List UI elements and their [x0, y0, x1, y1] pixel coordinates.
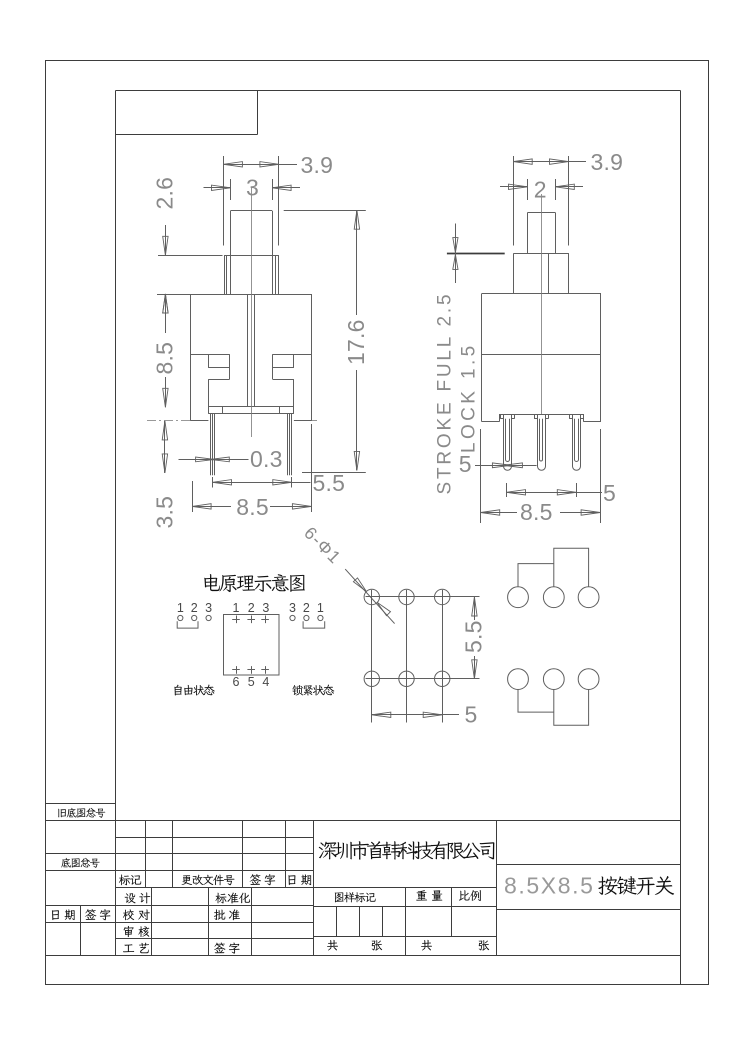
svg-text:1: 1: [233, 601, 240, 615]
svg-text:8.5: 8.5: [520, 499, 553, 525]
svg-text:3: 3: [262, 601, 269, 615]
svg-text:2.6: 2.6: [152, 177, 178, 210]
svg-text:5: 5: [603, 480, 616, 506]
svg-text:1: 1: [317, 601, 324, 615]
svg-text:3: 3: [289, 601, 296, 615]
svg-text:1: 1: [177, 601, 184, 615]
svg-text:5: 5: [459, 451, 472, 477]
svg-text:3.9: 3.9: [591, 149, 624, 175]
svg-text:3: 3: [246, 175, 259, 201]
svg-text:2: 2: [303, 601, 310, 615]
svg-text:3.9: 3.9: [301, 152, 334, 178]
svg-text:6: 6: [233, 675, 240, 689]
svg-text:8.5: 8.5: [152, 342, 178, 375]
svg-text:17.6: 17.6: [343, 319, 369, 365]
svg-text:STROKE FULL 2.5: STROKE FULL 2.5: [435, 292, 456, 495]
svg-text:4: 4: [262, 675, 269, 689]
svg-text:0.3: 0.3: [250, 446, 283, 472]
svg-text:5.5: 5.5: [313, 470, 346, 496]
svg-text:2: 2: [534, 177, 547, 203]
svg-text:3: 3: [205, 601, 212, 615]
svg-text:3.5: 3.5: [152, 496, 178, 529]
svg-text:2: 2: [191, 601, 198, 615]
svg-text:2: 2: [248, 601, 255, 615]
svg-text:5.5: 5.5: [461, 620, 487, 653]
svg-text:8.5: 8.5: [236, 494, 269, 520]
svg-text:5: 5: [248, 675, 255, 689]
svg-text:LOCK 1.5: LOCK 1.5: [459, 342, 480, 453]
svg-text:8.5X8.5: 8.5X8.5: [504, 873, 595, 899]
svg-text:5: 5: [465, 702, 478, 728]
